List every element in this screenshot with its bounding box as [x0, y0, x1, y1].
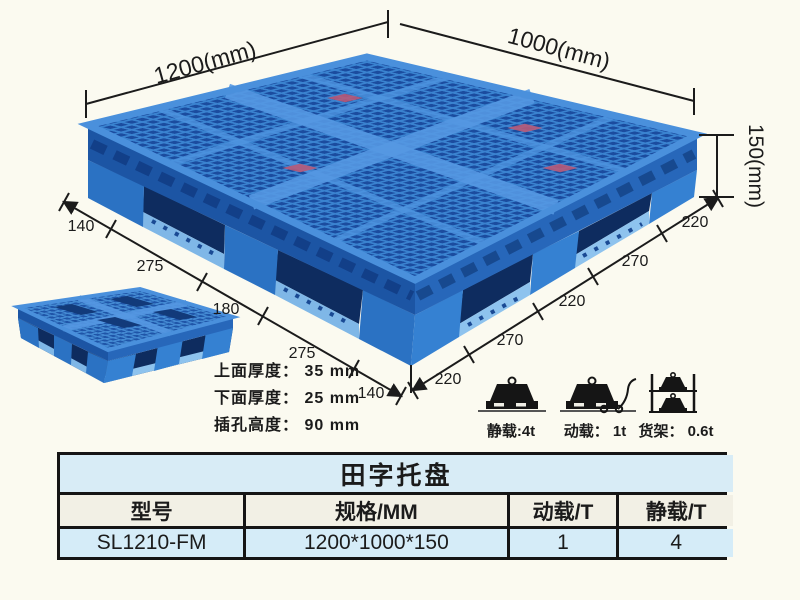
svg-text:140: 140 [358, 385, 385, 402]
static-load-icon [478, 378, 546, 412]
col-header-size: 规格/MM [246, 495, 506, 526]
svg-text:270: 270 [497, 332, 524, 349]
col-header-model: 型号 [60, 495, 243, 526]
svg-text:220: 220 [435, 371, 462, 388]
thickness-specs: 上面厚度： 35 mm 下面厚度： 25 mm 插孔高度： 90 mm [214, 358, 360, 439]
table-title: 田字托盘 [60, 455, 733, 492]
height-dimension [699, 135, 734, 197]
cell-model: SL1210-FM [60, 529, 243, 557]
svg-text:140: 140 [68, 218, 95, 235]
spec-bottom-thickness: 下面厚度： 25 mm [214, 385, 360, 412]
static-load-label: 静载:4t [487, 422, 535, 440]
cell-dynamic-load: 1 [510, 529, 617, 557]
svg-text:220: 220 [559, 293, 586, 310]
svg-text:180: 180 [213, 301, 240, 318]
col-header-dynamic-load: 动载/T [510, 495, 617, 526]
col-header-static-load: 静载/T [619, 495, 733, 526]
dynamic-load-label: 动载： 1t [564, 422, 627, 440]
svg-text:275: 275 [137, 258, 164, 275]
spec-table: 田字托盘 型号 规格/MM 动载/T 静载/T SL1210-FM 1200*1… [57, 452, 727, 560]
spec-fork-height: 插孔高度： 90 mm [214, 412, 360, 439]
small-pallet [18, 289, 233, 383]
cell-size: 1200*1000*150 [246, 529, 506, 557]
dynamic-load-icon [560, 378, 636, 413]
pallet-diagram: 1200(mm) 1000(mm) 150(mm) 140 275 180 27… [0, 0, 800, 455]
rack-load-label: 货架： 0.6t [638, 422, 713, 440]
rack-load-icon [649, 373, 697, 413]
height-dimension-label: 150(mm) [744, 124, 767, 208]
cell-static-load: 4 [619, 529, 733, 557]
product-sheet: 1200(mm) 1000(mm) 150(mm) 140 275 180 27… [0, 0, 800, 600]
svg-text:270: 270 [622, 253, 649, 270]
spec-top-thickness: 上面厚度： 35 mm [214, 358, 360, 385]
svg-text:220: 220 [682, 214, 709, 231]
length-dimension-label: 1200(mm) [151, 36, 259, 89]
